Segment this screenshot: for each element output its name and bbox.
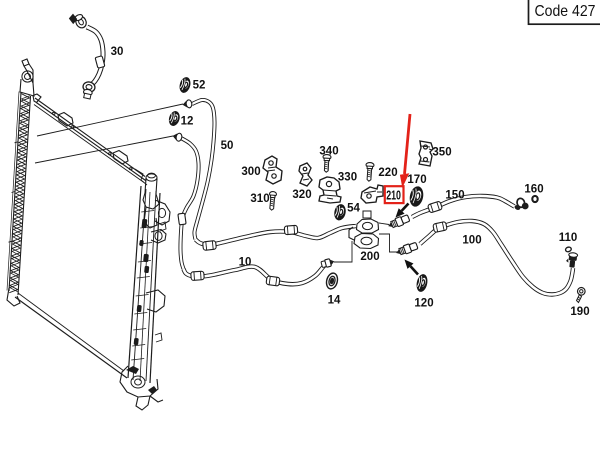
svg-text:330: 330 <box>338 172 357 184</box>
svg-text:50: 50 <box>221 140 234 152</box>
svg-text:310: 310 <box>250 193 269 205</box>
svg-text:Code 427: Code 427 <box>535 3 596 20</box>
svg-text:100: 100 <box>462 235 481 247</box>
svg-text:350: 350 <box>432 147 451 159</box>
svg-text:340: 340 <box>319 146 338 158</box>
svg-text:54: 54 <box>347 202 360 214</box>
svg-text:170: 170 <box>407 174 426 186</box>
svg-text:190: 190 <box>570 306 589 318</box>
svg-text:10: 10 <box>239 257 252 269</box>
svg-text:52: 52 <box>193 80 206 92</box>
svg-text:30: 30 <box>111 46 124 58</box>
svg-text:14: 14 <box>328 295 341 307</box>
svg-text:320: 320 <box>292 189 311 201</box>
svg-text:110: 110 <box>559 232 578 244</box>
svg-text:210: 210 <box>386 187 401 202</box>
svg-text:12: 12 <box>181 115 194 127</box>
svg-text:200: 200 <box>360 251 379 263</box>
svg-text:300: 300 <box>241 166 260 178</box>
svg-text:150: 150 <box>445 190 464 202</box>
svg-text:220: 220 <box>378 167 397 179</box>
svg-text:160: 160 <box>524 183 543 195</box>
svg-text:120: 120 <box>414 298 433 310</box>
